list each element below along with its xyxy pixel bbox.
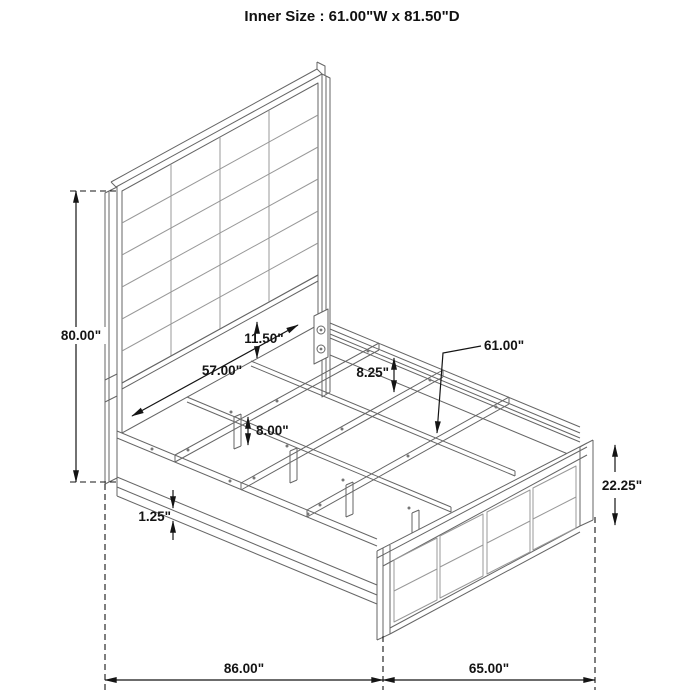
slat-support-rails	[187, 361, 515, 512]
dim-overall-depth-label: 86.00"	[224, 661, 264, 676]
dim-footboard-width: 65.00"	[383, 661, 595, 680]
dim-headboard-panel-to-rail-label: 11.50"	[244, 331, 283, 346]
dim-support-leg-height: 8.00"	[248, 417, 289, 445]
dim-headboard-inner-width-label: 57.00"	[202, 363, 242, 378]
bracket-bolt-top-center	[320, 329, 323, 332]
headboard-mounting-bracket	[314, 309, 328, 364]
dim-rail-to-slat: 8.25"	[356, 358, 394, 392]
dim-headboard-height-label: 80.00"	[61, 328, 101, 343]
dim-rail-to-slat-label: 8.25"	[356, 365, 389, 380]
footboard	[377, 440, 593, 640]
dim-footboard-height: 22.25"	[602, 445, 642, 525]
footboard-body	[377, 440, 593, 640]
side-rail-right	[330, 323, 580, 459]
bracket-bolt-bottom-center	[320, 348, 323, 351]
dim-rail-bottom-lip-label: 1.25"	[138, 509, 171, 524]
diagram-title: Inner Size : 61.00"W x 81.50"D	[244, 8, 459, 25]
bed-dimension-drawing: 80.00" 57.00" 11.50" 8.25" 61.00" 8.00" …	[0, 0, 700, 700]
dim-headboard-panel-to-rail: 11.50"	[244, 322, 283, 358]
dim-footboard-width-label: 65.00"	[469, 661, 509, 676]
dim-footboard-height-label: 22.25"	[602, 478, 642, 493]
dim-slat-length-label: 61.00"	[484, 338, 524, 353]
dim-support-leg-height-label: 8.00"	[256, 423, 289, 438]
headboard	[105, 62, 330, 484]
dim-overall-depth: 86.00"	[105, 661, 383, 680]
product-dimension-diagram: 80.00" 57.00" 11.50" 8.25" 61.00" 8.00" …	[0, 0, 700, 700]
